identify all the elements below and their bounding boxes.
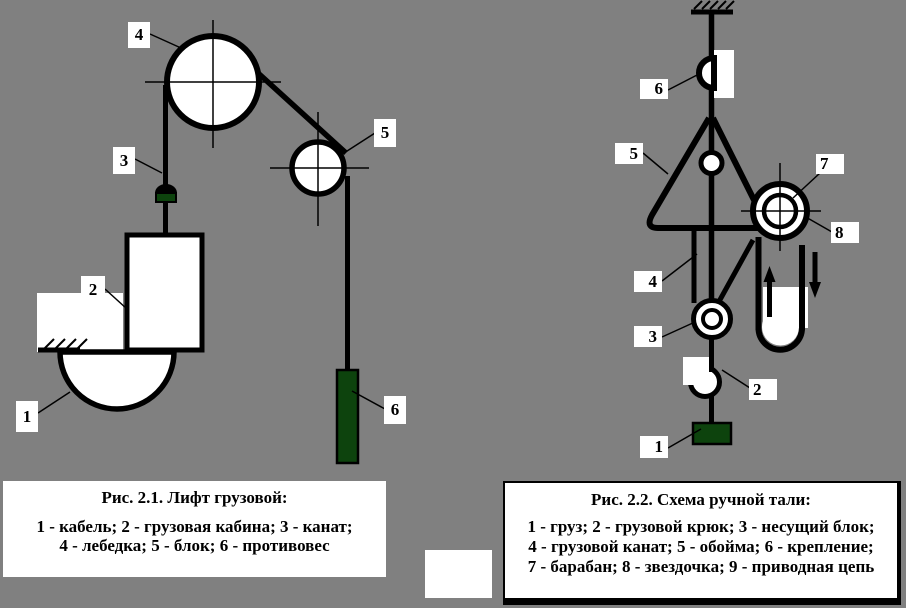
- label-left-1: 1: [16, 401, 38, 432]
- axle-pin: [701, 153, 722, 174]
- manual-hoist-diagram: [643, 1, 832, 448]
- caption-fig-2-2-line2: 4 - грузовой канат; 5 - обойма; 6 - креп…: [505, 537, 897, 557]
- rope-clamp-dome: [155, 184, 177, 193]
- cargo-cabin: [127, 235, 202, 350]
- label-left-6: 6: [384, 396, 406, 424]
- label-right-3: 3: [634, 326, 662, 347]
- label-right-8: 8: [831, 222, 859, 243]
- caption-fig-2-1-line1: 1 - кабель; 2 - грузовая кабина; 3 - кан…: [3, 517, 386, 536]
- diagonal-rope: [258, 73, 346, 153]
- chain-down-arrow: [809, 252, 821, 298]
- caption-fig-2-2: Рис. 2.2. Схема ручной тали: 1 - груз; 2…: [503, 481, 901, 605]
- counterweight: [337, 370, 358, 463]
- label-right-4: 4: [634, 271, 662, 292]
- label-right-1: 1: [640, 436, 668, 458]
- caption-fig-2-2-line3: 7 - барабан; 8 - звездочка; 9 - приводна…: [505, 557, 897, 577]
- mounting-hook: [699, 58, 714, 88]
- ceiling-hatching: [694, 1, 734, 9]
- technical-figure-page: 4 3 5 2 1 6 6 5 7 8 4 3 2 1 Рис. 2.1. Ли…: [0, 0, 906, 608]
- caption-fig-2-2-line1: 1 - груз; 2 - грузовой крюк; 3 - несущий…: [505, 517, 897, 537]
- load: [693, 423, 731, 444]
- cargo-rope-diagonal: [716, 240, 753, 307]
- blank-white-box: [425, 550, 492, 598]
- label-right-5: 5: [615, 143, 643, 164]
- label-right-2: 2: [749, 379, 777, 400]
- hook-patch: [683, 357, 711, 385]
- label-right-7: 7: [816, 154, 844, 174]
- caption-fig-2-1-title: Рис. 2.1. Лифт грузовой:: [3, 488, 386, 508]
- cable-drum: [60, 352, 174, 409]
- carrying-block-hub: [703, 310, 721, 328]
- label-left-2: 2: [81, 276, 105, 303]
- label-right-6: 6: [640, 79, 668, 99]
- label-left-4: 4: [128, 22, 150, 48]
- caption-fig-2-1-line2: 4 - лебедка; 5 - блок; 6 - противовес: [3, 536, 386, 555]
- cargo-lift-diagram: [37, 20, 385, 463]
- caption-fig-2-1: Рис. 2.1. Лифт грузовой: 1 - кабель; 2 -…: [3, 481, 386, 577]
- rope-clamp: [156, 193, 176, 202]
- caption-fig-2-2-title: Рис. 2.2. Схема ручной тали:: [505, 490, 897, 510]
- label-left-5: 5: [374, 119, 396, 147]
- label-left-3: 3: [113, 147, 135, 174]
